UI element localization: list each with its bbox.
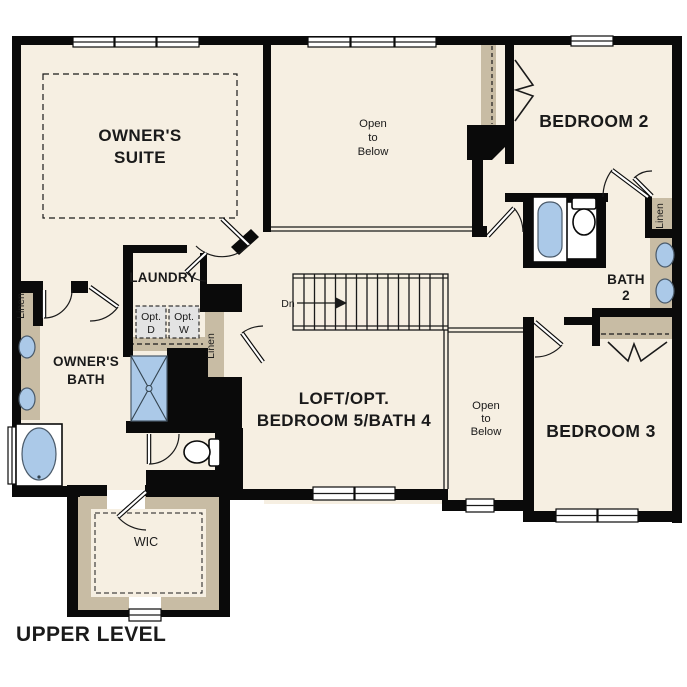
window [129,609,161,621]
bathtub-icon [16,424,62,486]
open-to-below-label: to [368,132,377,144]
window [157,37,199,47]
bath2-label: 2 [622,288,630,303]
opt-dryer-label: D [147,324,155,336]
open-to-below-label: Open [359,118,387,130]
window [395,37,436,47]
page-title: UPPER LEVEL [16,623,166,646]
window [466,499,494,512]
owners-bath-label: BATH [67,372,105,387]
bathtub-icon [533,197,567,262]
open-to-below2-label: to [481,413,490,425]
owners-suite-label: SUITE [114,148,166,167]
owners-bath-label: OWNER'S [53,354,119,369]
linen-label: Linen [205,333,217,359]
sink-icon [656,279,674,303]
window [115,37,156,47]
sink-icon [19,388,35,410]
window [355,487,395,500]
floor-plan: OWNER'S SUITE Open to Below BEDROOM 2 LA… [0,0,687,687]
chase [481,44,496,126]
shower-icon [131,356,167,421]
window [571,36,613,46]
sink-icon [19,336,35,358]
opt-washer-label: Opt. [174,311,194,323]
open-to-below2-label: Below [471,426,503,438]
stairs-down-label: Dn [281,298,295,310]
loft-label: LOFT/OPT. [299,389,389,408]
window [8,427,16,484]
open-to-below2-label: Open [472,400,500,412]
owners-suite-label: OWNER'S [98,126,181,145]
open-to-below-label: Below [358,146,390,158]
bath2-label: BATH [607,272,645,287]
window [308,37,350,47]
linen-label: Linen [654,203,666,229]
bedroom2-label: BEDROOM 2 [539,111,649,131]
loft-label: BEDROOM 5/BATH 4 [257,411,431,430]
window [73,37,114,47]
floor-plan-page: OWNER'S SUITE Open to Below BEDROOM 2 LA… [0,0,687,687]
stairs [293,274,448,330]
linen-label: Linen [15,293,27,319]
window [351,37,394,47]
window [556,509,597,522]
laundry-label: LAUNDRY [129,270,197,285]
window [598,509,638,522]
opt-washer-label: W [179,324,189,336]
floor-bedroom3 [532,317,674,517]
bedroom3-closet [598,317,672,339]
sink-icon [656,243,674,267]
bedroom3-label: BEDROOM 3 [546,421,656,441]
wic-closet [67,485,230,617]
window [313,487,354,500]
opt-dryer-label: Opt. [141,311,161,323]
wic-label: WIC [134,535,158,549]
toilet-icon [572,198,596,235]
